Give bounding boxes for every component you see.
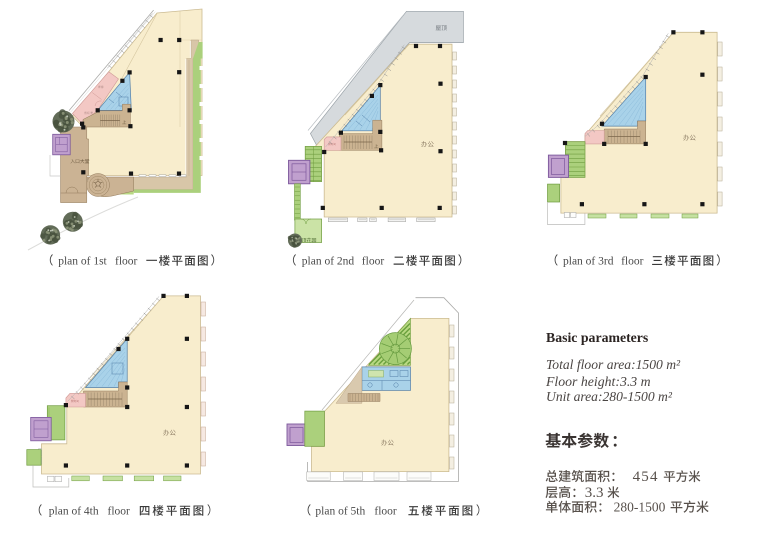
svg-text:floor: floor — [374, 505, 397, 517]
svg-text:plan of 5th: plan of 5th — [315, 505, 365, 517]
svg-text:Basic parameters: Basic parameters — [546, 330, 649, 345]
svg-text:Floor height:3.3 m: Floor height:3.3 m — [545, 374, 651, 389]
svg-text:plan of 2nd: plan of 2nd — [302, 255, 355, 267]
svg-text:floor: floor — [115, 255, 138, 267]
svg-text:3.3: 3.3 — [585, 485, 604, 501]
svg-text:Unit area:280-1500 m²: Unit area:280-1500 m² — [546, 389, 673, 404]
svg-text:Total floor area:1500 m²: Total floor area:1500 m² — [546, 357, 681, 372]
svg-text:plan of 1st: plan of 1st — [58, 255, 107, 267]
svg-text:plan of 3rd: plan of 3rd — [563, 255, 614, 267]
svg-text:floor: floor — [362, 255, 385, 267]
svg-text:plan of 4th: plan of 4th — [49, 505, 99, 517]
svg-text:454: 454 — [633, 469, 659, 485]
svg-text:floor: floor — [621, 255, 644, 267]
svg-text:floor: floor — [108, 505, 131, 517]
svg-text:280-1500: 280-1500 — [614, 500, 666, 515]
